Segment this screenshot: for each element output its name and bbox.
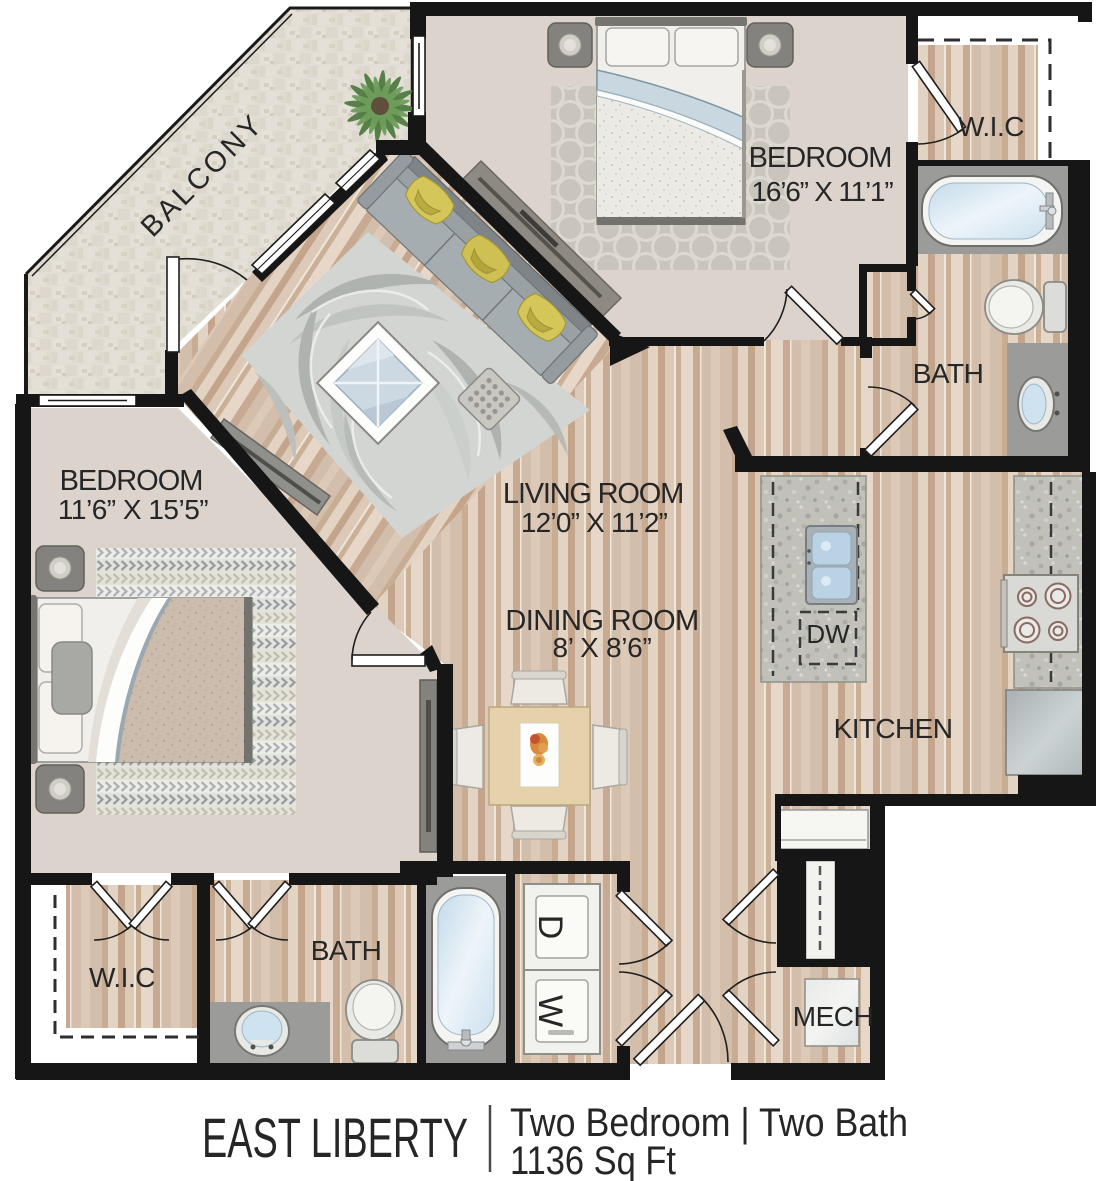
svg-text:W: W [531,995,569,1027]
svg-text:8’ X 8’6”: 8’ X 8’6” [553,632,652,663]
svg-text:DW: DW [806,619,850,649]
svg-text:W.I.C: W.I.C [89,962,155,993]
svg-text:11’6” X 15’5”: 11’6” X 15’5” [58,494,208,525]
svg-text:BATH: BATH [913,358,984,389]
svg-text:W.I.C: W.I.C [958,111,1024,142]
svg-text:D: D [531,915,569,940]
svg-text:1136 Sq Ft: 1136 Sq Ft [510,1139,676,1181]
svg-text:EAST LIBERTY: EAST LIBERTY [202,1106,468,1169]
svg-text:MECH: MECH [793,1001,873,1032]
svg-text:12’0” X 11’2”: 12’0” X 11’2” [521,507,668,538]
svg-text:LIVING ROOM: LIVING ROOM [503,478,683,510]
svg-text:BEDROOM: BEDROOM [60,465,203,497]
svg-text:BEDROOM: BEDROOM [749,142,892,174]
svg-text:BATH: BATH [311,935,382,966]
svg-text:KITCHEN: KITCHEN [834,713,953,744]
svg-text:16’6” X 11’1”: 16’6” X 11’1” [751,176,893,207]
